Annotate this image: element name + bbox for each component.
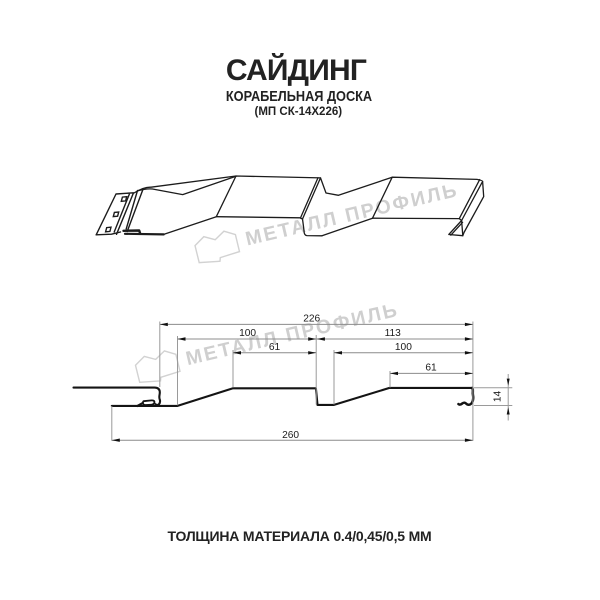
svg-text:САЙДИНГ: САЙДИНГ xyxy=(226,53,367,87)
svg-text:61: 61 xyxy=(269,342,281,353)
svg-text:(МП СК-14Х226): (МП СК-14Х226) xyxy=(255,105,343,118)
svg-text:МЕТАЛЛ ПРОФИЛЬ: МЕТАЛЛ ПРОФИЛЬ xyxy=(184,299,401,370)
svg-text:100: 100 xyxy=(395,342,412,353)
svg-text:ТОЛЩИНА МАТЕРИАЛА 0.4/0,45/0,5: ТОЛЩИНА МАТЕРИАЛА 0.4/0,45/0,5 ММ xyxy=(167,528,431,544)
svg-text:МЕТАЛЛ ПРОФИЛЬ: МЕТАЛЛ ПРОФИЛЬ xyxy=(243,179,460,250)
svg-text:14: 14 xyxy=(493,391,504,403)
svg-text:100: 100 xyxy=(239,328,256,339)
svg-text:113: 113 xyxy=(385,328,402,339)
svg-text:КОРАБЕЛЬНАЯ ДОСКА: КОРАБЕЛЬНАЯ ДОСКА xyxy=(226,87,372,104)
svg-text:260: 260 xyxy=(282,430,299,441)
svg-text:61: 61 xyxy=(425,363,437,374)
svg-text:226: 226 xyxy=(303,314,320,325)
